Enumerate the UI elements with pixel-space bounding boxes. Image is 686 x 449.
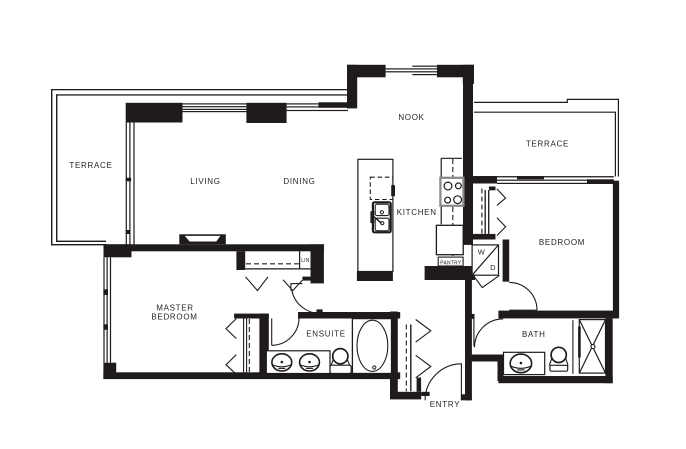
- svg-text:ENTRY: ENTRY: [430, 400, 460, 409]
- svg-text:LIVING: LIVING: [190, 177, 220, 186]
- svg-text:MASTER: MASTER: [156, 303, 194, 312]
- svg-text:BEDROOM: BEDROOM: [151, 313, 197, 322]
- svg-text:LIN: LIN: [301, 258, 310, 264]
- svg-text:BATH: BATH: [522, 330, 546, 339]
- svg-text:TERRACE: TERRACE: [526, 140, 569, 149]
- svg-text:KITCHEN: KITCHEN: [397, 208, 437, 217]
- svg-text:PANTRY: PANTRY: [440, 260, 461, 266]
- svg-text:TERRACE: TERRACE: [69, 161, 112, 170]
- svg-text:DINING: DINING: [283, 177, 315, 186]
- svg-text:BEDROOM: BEDROOM: [539, 238, 585, 247]
- svg-text:ENSUITE: ENSUITE: [306, 329, 346, 338]
- svg-text:D: D: [490, 263, 496, 272]
- svg-text:NOOK: NOOK: [398, 113, 424, 122]
- svg-text:W: W: [478, 248, 486, 257]
